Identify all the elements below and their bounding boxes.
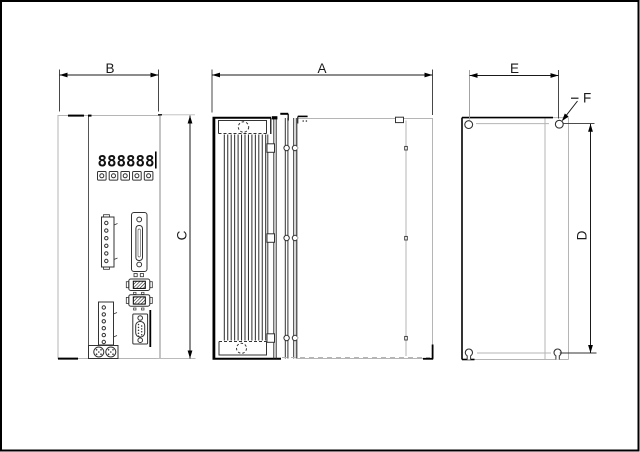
chassis-strips [267,114,298,359]
dim-label-A: A [317,61,326,76]
dimension-drawing: 888888 [0,0,640,452]
mounting-plate-view [462,118,569,360]
side-body [282,116,433,358]
front-panel-view: 888888 [58,115,160,359]
dim-label-E: E [510,61,519,76]
side-left-edge [213,117,216,360]
mounting-hole-top-right [555,120,563,128]
heatsink-fins-icon [224,135,267,341]
bottom-mounting-bracket-icon [219,342,267,356]
dim-label-F: F [583,91,591,106]
display-digits: 888888 [98,152,155,171]
top-mounting-bracket-icon [219,121,267,134]
callout-F: F [562,91,591,122]
dimension-A: A [212,61,433,115]
seven-segment-display-icon: 888888 [98,152,156,171]
dim-label-D: D [575,230,590,240]
mounting-slot-bottom-left [465,349,472,360]
dimension-D: D [560,124,597,353]
dim-label-B: B [105,61,114,76]
dim-label-C: C [175,230,190,240]
dimension-B: B [60,61,159,112]
dimension-C: C [157,115,196,359]
mounting-slot-bottom-right [554,349,561,360]
drawing-canvas: 888888 [0,0,640,452]
mounting-hole-top-left [465,121,473,129]
dimension-E: E [470,61,559,120]
side-view [213,114,434,360]
